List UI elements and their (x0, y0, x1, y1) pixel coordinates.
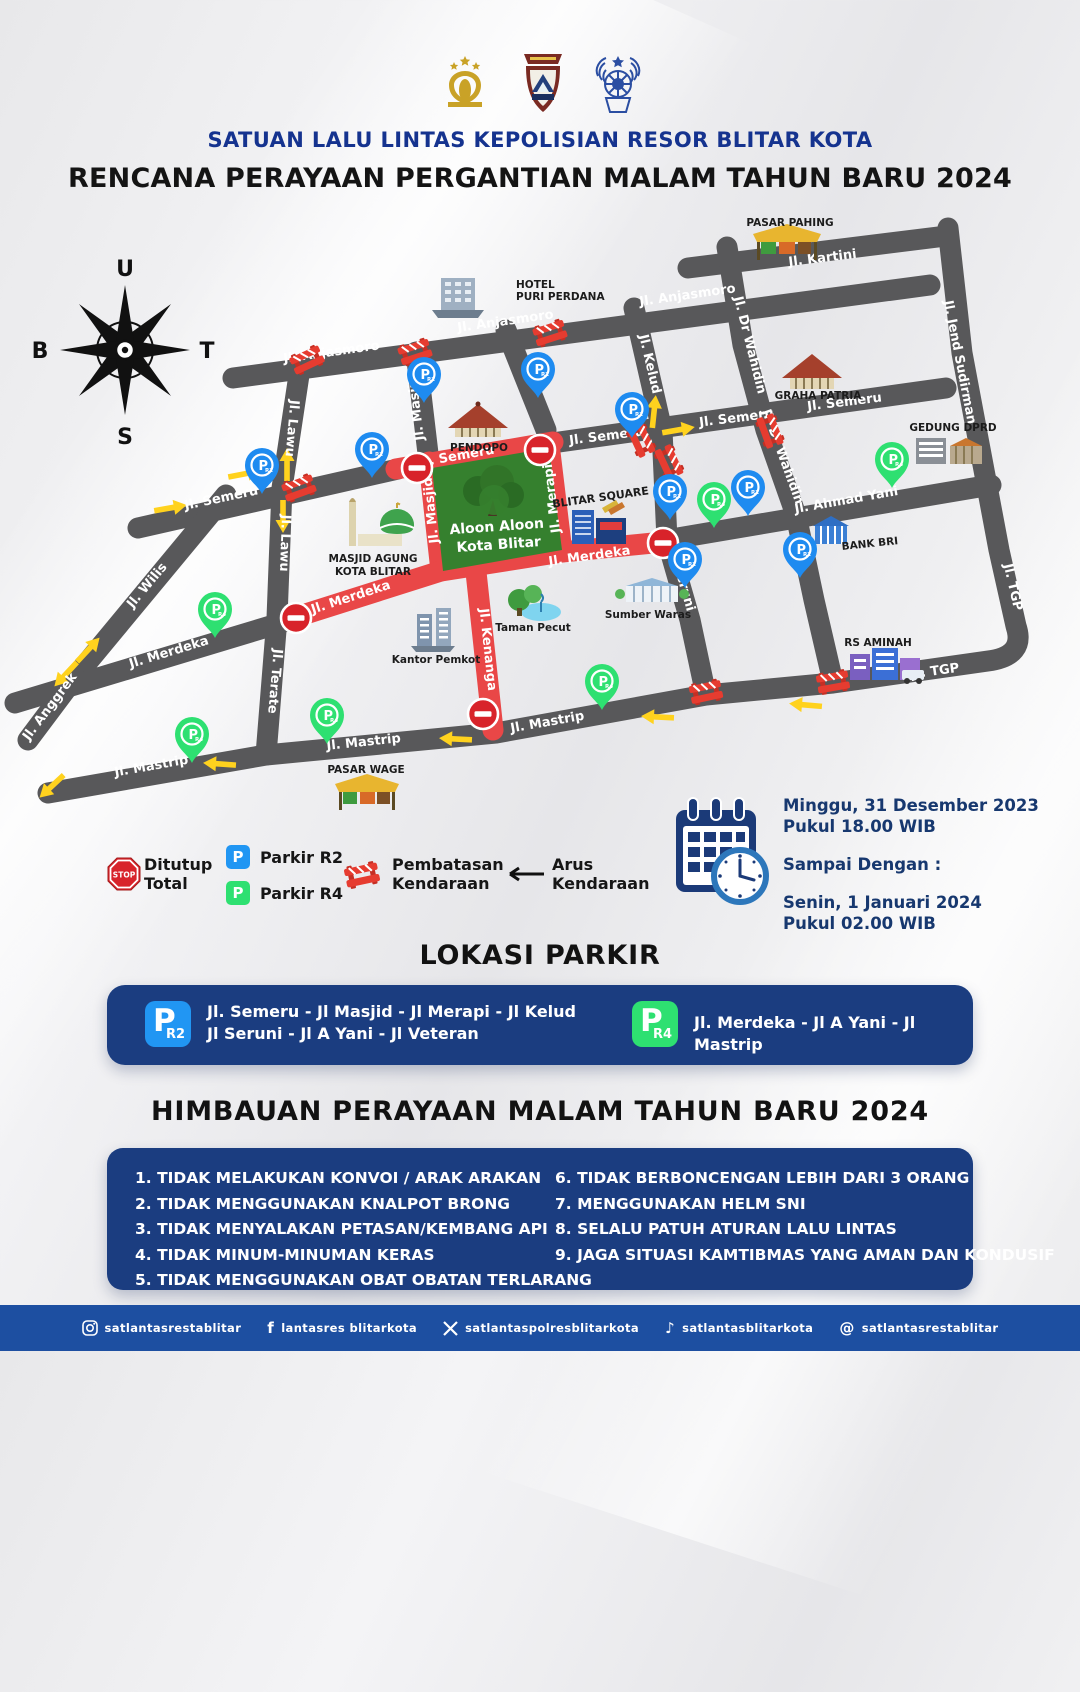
parkir-r2-icon: P (226, 845, 250, 869)
svg-text:PASAR PAHING: PASAR PAHING (746, 217, 833, 229)
taman-pecut (508, 585, 561, 621)
closed-total-icon: STOP (106, 856, 142, 894)
page-title: RENCANA PERAYAAN PERGANTIAN MALAM TAHUN … (0, 163, 1080, 194)
compass-south: S (117, 425, 133, 450)
svg-text:PASAR WAGE: PASAR WAGE (327, 764, 404, 776)
svg-text:Kantor Pemkot: Kantor Pemkot (392, 654, 480, 666)
instagram-icon (82, 1320, 98, 1336)
svg-text:RS AMINAH: RS AMINAH (844, 637, 912, 649)
parkir-r4-badge: PR4 (632, 1001, 678, 1047)
footer-bar: satlantasrestablitar f lantasres blitark… (0, 1305, 1080, 1351)
parking-panel: PR2 Jl. Semeru - Jl Masjid - Jl Merapi -… (107, 985, 973, 1065)
advisory-item: 3. TIDAK MENYALAKAN PETASAN/KEMBANG API (135, 1217, 592, 1243)
legend-parkir-r4: Parkir R4 (260, 884, 343, 903)
end-time: Pukul 02.00 WIB (783, 913, 1039, 934)
graha-patria (782, 354, 842, 389)
threads-icon: @ (839, 1321, 854, 1336)
gedung-dprd (916, 438, 982, 464)
advisory-item: 9. JAGA SITUASI KAMTIBMAS YANG AMAN DAN … (555, 1243, 1055, 1269)
advisory-title: HIMBAUAN PERAYAAN MALAM TAHUN BARU 2024 (0, 1096, 1080, 1127)
svg-text:GRAHA PATRIA: GRAHA PATRIA (775, 390, 863, 402)
rs-aminah (850, 648, 924, 684)
masjid-agung (349, 498, 414, 546)
svg-text:BANK BRI: BANK BRI (841, 535, 899, 553)
pendopo (448, 402, 508, 438)
svg-text:STOP: STOP (113, 871, 136, 880)
kantor-pemkot (411, 608, 455, 652)
poster: SATUAN LALU LINTAS KEPOLISIAN RESOR BLIT… (0, 0, 1080, 1351)
parking-title: LOKASI PARKIR (0, 940, 1080, 971)
svg-text:Taman Pecut: Taman Pecut (495, 622, 571, 634)
advisory-panel: 1. TIDAK MELAKUKAN KONVOI / ARAK ARAKAN … (107, 1148, 973, 1290)
parking-r4-roads: Jl. Merdeka - Jl A Yani - Jl Mastrip (694, 1012, 973, 1056)
calendar-clock-icon (672, 796, 772, 908)
social-x: satlantaspolresblitarkota (443, 1321, 639, 1336)
social-facebook: f lantasres blitarkota (267, 1321, 417, 1336)
compass-east: T (199, 339, 214, 364)
compass-rose: U T S B (32, 257, 215, 450)
svg-text:HOTEL: HOTEL (516, 279, 555, 291)
social-tiktok: ♪ satlantasblitarkota (665, 1321, 813, 1336)
advisory-col1: 1. TIDAK MELAKUKAN KONVOI / ARAK ARAKAN … (135, 1166, 592, 1294)
end-date: Senin, 1 Januari 2024 (783, 892, 1039, 913)
svg-text:BLITAR SQUARE: BLITAR SQUARE (551, 484, 649, 510)
org-title: SATUAN LALU LINTAS KEPOLISIAN RESOR BLIT… (0, 128, 1080, 152)
advisory-item: 6. TIDAK BERBONCENGAN LEBIH DARI 3 ORANG (555, 1166, 1055, 1192)
tiktok-icon: ♪ (665, 1321, 675, 1336)
advisory-item: 5. TIDAK MENGGUNAKAN OBAT OBATAN TERLARA… (135, 1268, 592, 1294)
svg-text:GEDUNG DPRD: GEDUNG DPRD (909, 422, 997, 434)
polri-logo-icon (434, 54, 496, 116)
legend-closed: DitutupTotal (144, 855, 212, 893)
facebook-icon: f (267, 1321, 274, 1336)
legend-parkir-r2: Parkir R2 (260, 848, 343, 867)
restriction-barrier-icon (342, 858, 382, 892)
advisory-item: 2. TIDAK MENGGUNAKAN KNALPOT BRONG (135, 1192, 592, 1218)
start-time: Pukul 18.00 WIB (783, 816, 1039, 837)
compass-west: B (32, 339, 49, 364)
svg-text:KOTA BLITAR: KOTA BLITAR (335, 566, 411, 578)
parkir-r2-badge: PR2 (145, 1001, 191, 1047)
svg-text:PENDOPO: PENDOPO (450, 442, 508, 454)
social-threads: @ satlantasrestablitar (839, 1321, 998, 1336)
advisory-item: 4. TIDAK MINUM-MINUMAN KERAS (135, 1243, 592, 1269)
parkir-r4-icon: P (226, 881, 250, 905)
polantas-logo-icon (590, 54, 646, 116)
x-icon (443, 1321, 458, 1336)
schedule: Minggu, 31 Desember 2023 Pukul 18.00 WIB… (783, 795, 1039, 934)
legend-restriction: PembatasanKendaraan (392, 855, 504, 893)
flow-arrow-icon (500, 866, 546, 882)
advisory-item: 8. SELALU PATUH ATURAN LALU LINTAS (555, 1217, 1055, 1243)
polda-jatim-logo-icon (518, 52, 568, 116)
advisory-item: 7. MENGGUNAKAN HELM SNI (555, 1192, 1055, 1218)
pasar-wage (335, 774, 399, 810)
hotel-puri-perdana (432, 278, 484, 318)
logo-row (0, 52, 1080, 116)
legend-flow: ArusKendaraan (552, 855, 649, 893)
social-instagram: satlantasrestablitar (82, 1320, 242, 1336)
svg-text:Sumber Waras: Sumber Waras (605, 609, 691, 621)
advisory-item: 1. TIDAK MELAKUKAN KONVOI / ARAK ARAKAN (135, 1166, 592, 1192)
svg-text:PURI PERDANA: PURI PERDANA (516, 291, 605, 303)
advisory-col2: 6. TIDAK BERBONCENGAN LEBIH DARI 3 ORANG… (555, 1166, 1055, 1268)
city-map: P R2 P R4 (0, 198, 1080, 830)
compass-north: U (116, 257, 134, 282)
svg-text:Jl. Lawu: Jl. Lawu (276, 513, 293, 572)
start-date: Minggu, 31 Desember 2023 (783, 795, 1039, 816)
svg-text:MASJID AGUNG: MASJID AGUNG (329, 553, 418, 565)
parking-r2-roads: Jl. Semeru - Jl Masjid - Jl Merapi - Jl … (207, 1001, 576, 1045)
schedule-until: Sampai Dengan : (783, 854, 1039, 875)
